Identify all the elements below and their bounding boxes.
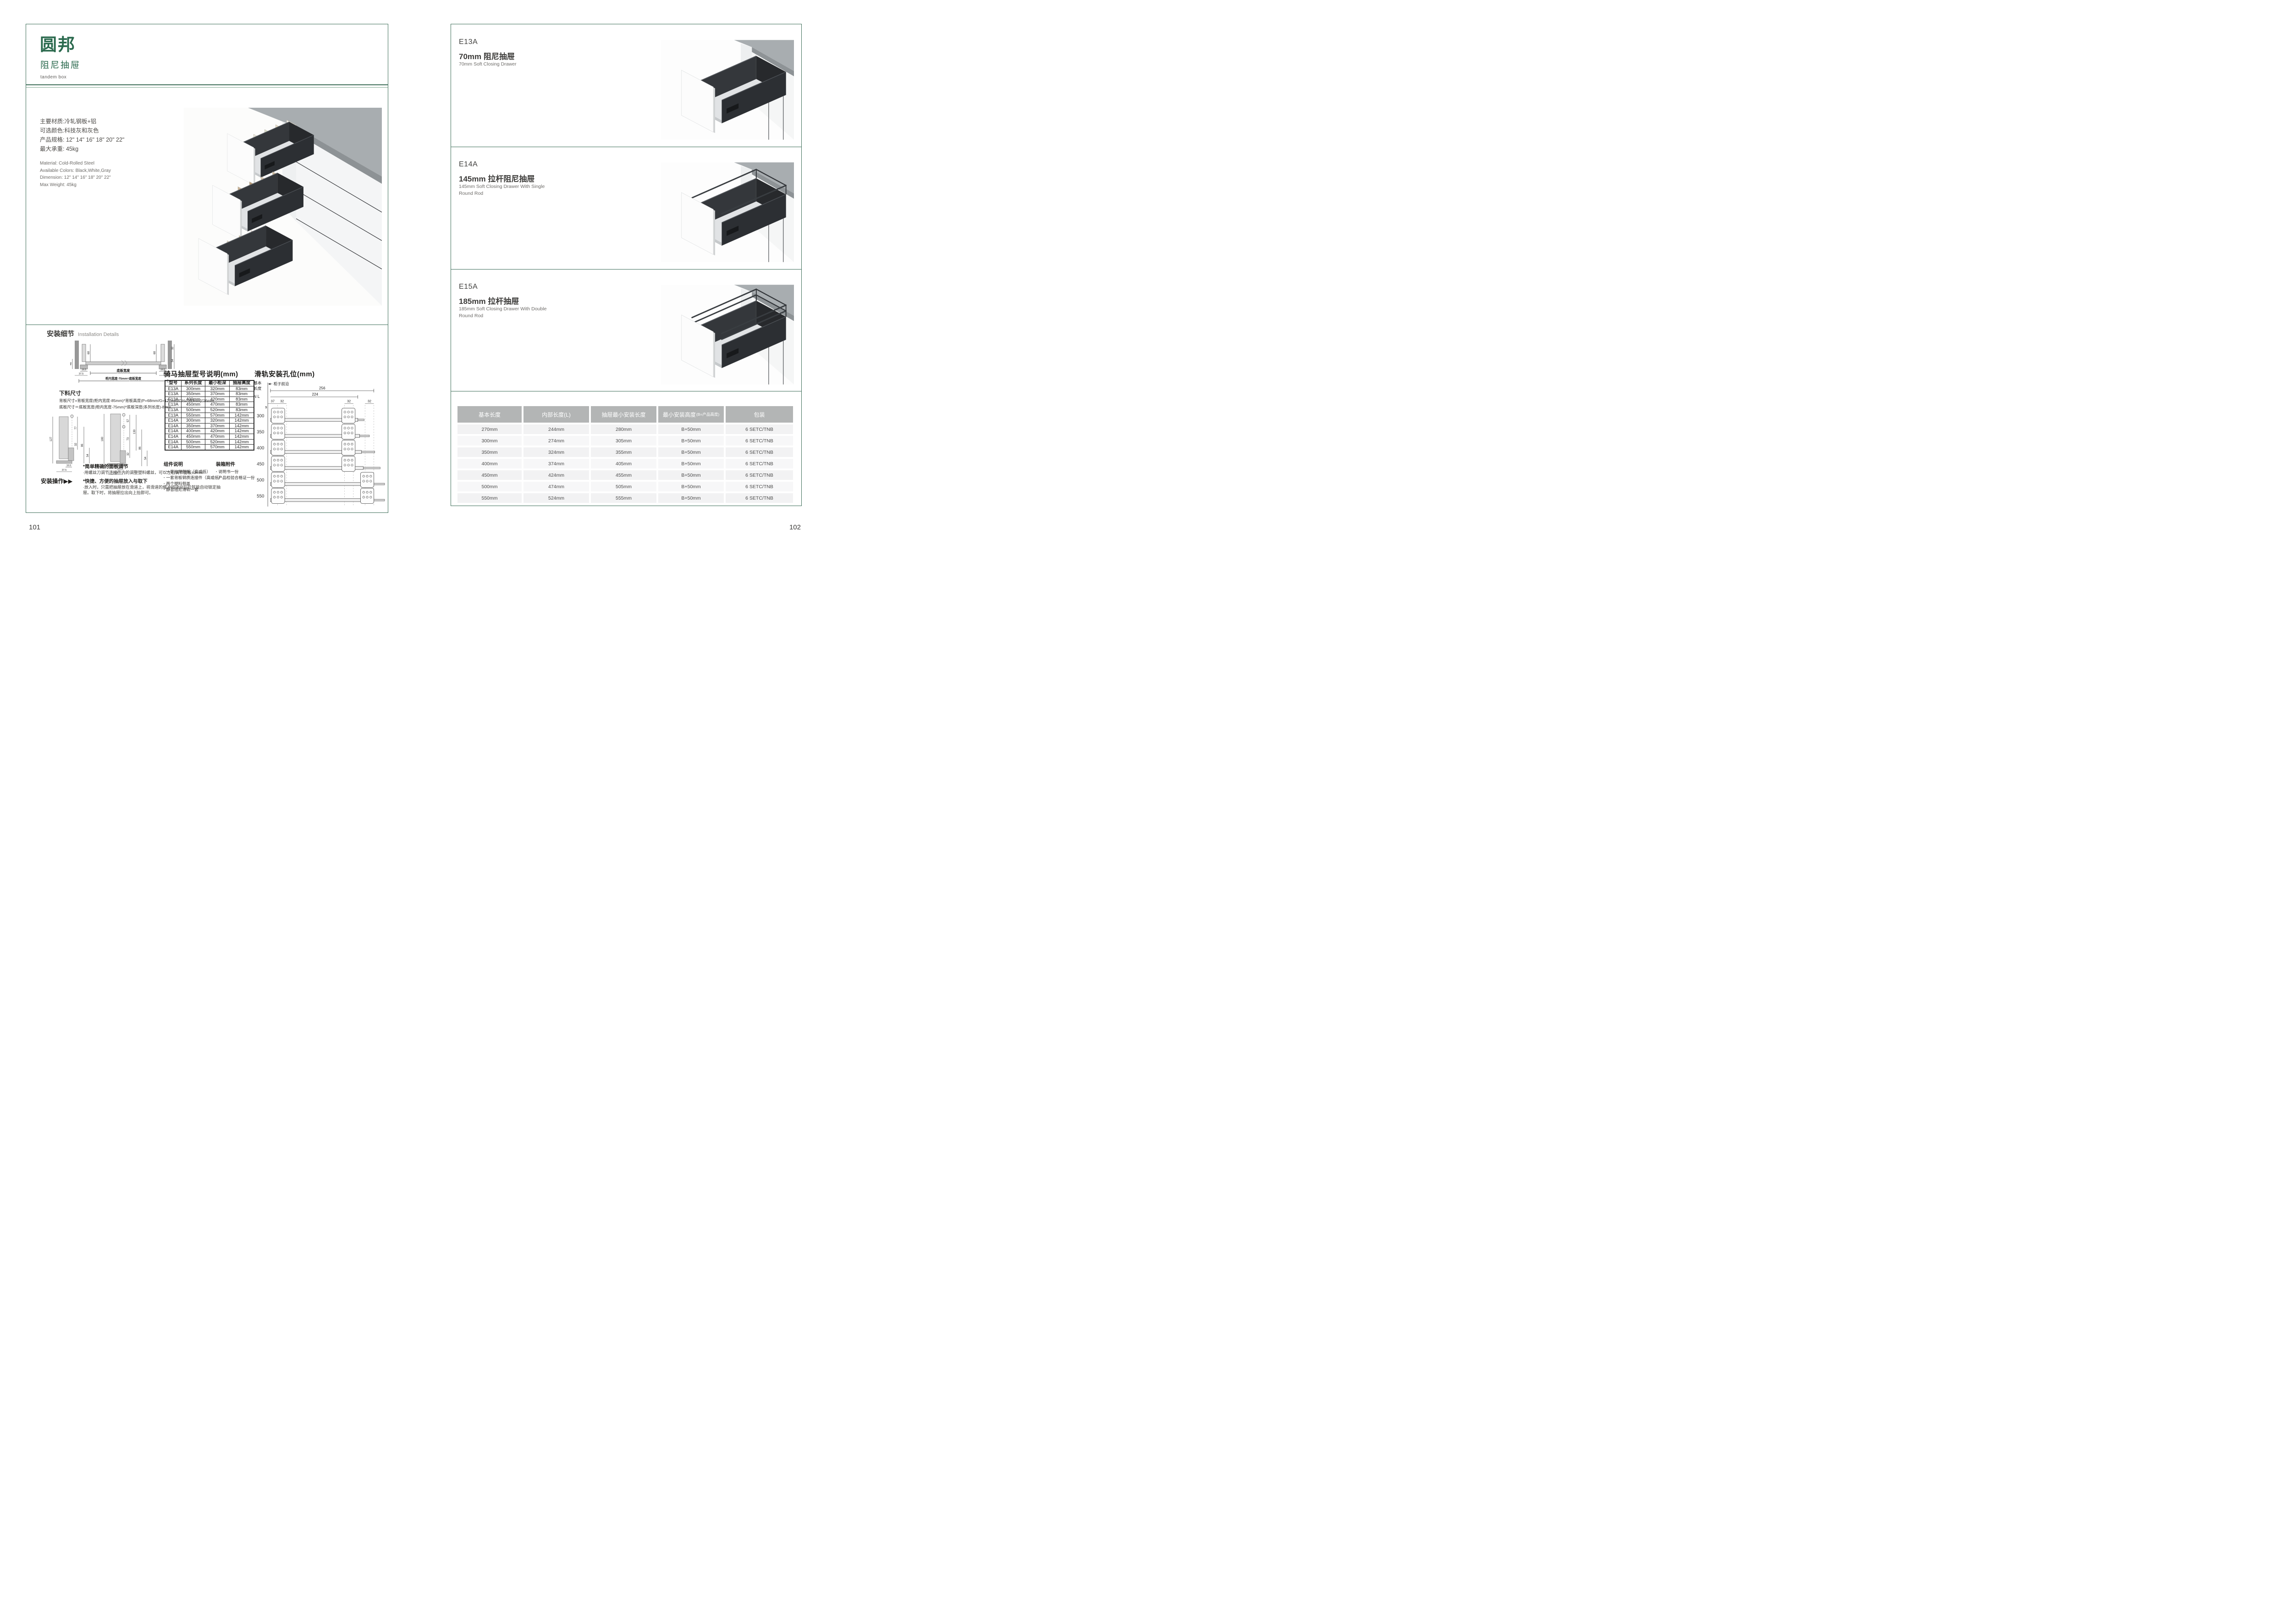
install-title: 安装细节Installation Details: [47, 329, 119, 338]
rail-length-label: 350: [257, 430, 264, 435]
rail-length-label: 300: [257, 414, 264, 419]
table-row: E14A550mm570mm142mm: [165, 445, 254, 450]
dim-label: 57: [127, 419, 130, 422]
dim-label: 68: [154, 351, 156, 354]
dim-label: 54: [87, 454, 89, 457]
spec-cell: 550mm: [457, 493, 522, 503]
dim-label: 9: [265, 405, 267, 409]
spec-cell: 244mm: [523, 424, 589, 434]
model-col-header: 系列长度: [181, 380, 205, 386]
dim-label: 32: [280, 399, 284, 403]
dim-label: 77: [75, 426, 77, 429]
dim-label: 86: [81, 444, 84, 447]
dim-label: 37.5: [62, 469, 67, 472]
spec-cell: 355mm: [591, 447, 656, 457]
front-edge-label: 柜子前沿: [274, 382, 289, 386]
product-name-en-e15a: 185mm Soft Closing Drawer With Double Ro…: [459, 306, 557, 319]
section-divider: [26, 325, 388, 325]
page-number-left: 101: [29, 523, 40, 531]
spec-cell: 6 SETC/TNB: [726, 459, 793, 468]
table-row: E13A350mm370mm83mm: [165, 391, 254, 397]
dim-label: 54: [171, 359, 174, 362]
spec-col-header: 内部长度(L): [523, 406, 589, 423]
spec-cell: 6 SETC/TNB: [726, 436, 793, 446]
spec-cell: 280mm: [591, 424, 656, 434]
page-right-frame: E13A 70mm 阻尼抽屉 70mm Soft Closing Drawer …: [451, 24, 802, 506]
dim-label: 32: [75, 443, 77, 446]
spec-cell: B+50mm: [658, 470, 724, 480]
install-op-text: 安装操作: [41, 478, 64, 484]
dim-label: 224: [312, 392, 318, 396]
spec-table: 基本长度内部长度(L)抽屉最小安装长度最小安装高度(B=产品高度)包装270mm…: [457, 406, 795, 503]
spec-cell: 450mm: [457, 470, 522, 480]
spec-cell: 500mm: [457, 482, 522, 491]
install-cross-section-diagram: 46 68 68 32 54 16.5 37.5 16.5 37.5 底板宽度 …: [70, 339, 176, 385]
dim-label: 180: [101, 436, 104, 441]
dim-label: 底板宽度: [117, 369, 131, 373]
page-title-en: tandem box: [40, 75, 66, 80]
dim-label: 46: [70, 362, 72, 365]
spec-line: Dimension: 12" 14" 16" 18" 20" 22": [40, 174, 111, 182]
rail-length-label: 400: [257, 446, 264, 451]
product-model-e15a: E15A: [459, 283, 478, 291]
spec-line: Available Colors: Black,White,Gray: [40, 167, 111, 175]
section-divider: [451, 269, 801, 270]
product-photo-e13a: [661, 40, 794, 140]
table-row: E13A300mm320mm83mm: [165, 386, 254, 391]
model-table: 型号系列长度最小柜深抽屉高度E13A300mm320mm83mmE13A350m…: [165, 380, 254, 451]
spec-cell: B+50mm: [658, 436, 724, 446]
table-row: E14A350mm370mm142mm: [165, 423, 254, 429]
dim-label: 73: [127, 437, 130, 440]
page-number-right: 102: [775, 523, 801, 531]
spec-col-header: 包装: [726, 406, 793, 423]
spec-line: 主要材质:冷轧钢板+铝: [40, 117, 124, 126]
dim-label: 37.5: [79, 373, 84, 375]
spec-cell: 274mm: [523, 436, 589, 446]
page-title: 阻尼抽屉: [40, 61, 81, 70]
rail-length-label: 450: [257, 462, 264, 467]
spec-cell: 374mm: [523, 459, 589, 468]
model-table-title: 骑马抽屉型号说明(mm): [164, 369, 238, 379]
spec-line: 最大承重: 45kg: [40, 144, 124, 154]
spec-col-header: 基本长度: [457, 406, 522, 423]
rail-diagram-title: 滑轨安装孔位(mm): [254, 369, 315, 379]
dim-label: 37: [271, 399, 275, 403]
spec-cell: 6 SETC/TNB: [726, 447, 793, 457]
spec-cell: 6 SETC/TNB: [726, 493, 793, 503]
product-photo-e15a: [661, 285, 794, 385]
spec-cell: B+50mm: [658, 482, 724, 491]
catalog-spread: 圆邦 阻尼抽屉 tandem box 主要材质:冷轧钢板+铝 可选颜色:科技灰和…: [0, 0, 830, 541]
spec-cell: 6 SETC/TNB: [726, 482, 793, 491]
spec-cell: B+50mm: [658, 447, 724, 457]
rail-hole-diagram: 基本 长度 N L 柜子前沿 256 224 37 9 32 32 32 300…: [253, 379, 386, 509]
product-name-en-e14a: 145mm Soft Closing Drawer With Single Ro…: [459, 183, 557, 197]
table-row: E14A450mm470mm142mm: [165, 434, 254, 439]
list-item: 静音阻尼滑轨一套: [164, 487, 232, 493]
install-op-arrows: ▶▶: [64, 478, 72, 484]
product-name-e14a: 145mm 拉杆阻尼抽屉: [459, 172, 534, 184]
table-row: E14A500mm520mm142mm: [165, 439, 254, 445]
spec-line: 可选颜色:科技灰和灰色: [40, 126, 124, 135]
spec-cell: 6 SETC/TNB: [726, 470, 793, 480]
spec-cell: 474mm: [523, 482, 589, 491]
dim-label: 32: [368, 399, 371, 403]
spec-line: Max Weight: 45kg: [40, 182, 111, 189]
dim-label: 16.5: [66, 464, 71, 467]
spec-cell: 6 SETC/TNB: [726, 424, 793, 434]
product-model-e14a: E14A: [459, 160, 478, 169]
dim-label: 127: [50, 436, 53, 441]
dim-label: 32: [171, 347, 174, 350]
spec-cell: 270mm: [457, 424, 522, 434]
spec-cell: 350mm: [457, 447, 522, 457]
header-divider: [26, 84, 388, 88]
spec-cell: 305mm: [591, 436, 656, 446]
rail-length-label: 550: [257, 494, 264, 499]
install-title-cn: 安装细节: [47, 330, 74, 338]
spec-line: Material: Cold-Rolled Steel: [40, 160, 111, 167]
cutting-size-title: 下料尺寸: [59, 389, 81, 397]
dim-label: 柜内宽度-75mm=底板宽度: [105, 376, 141, 380]
spec-cell: 524mm: [523, 493, 589, 503]
section-divider: [451, 147, 801, 147]
model-col-header: 最小柜深: [205, 380, 230, 386]
main-product-photo: [184, 108, 382, 306]
rail-length-label: 500: [257, 478, 264, 483]
table-row: E13A400mm420mm83mm: [165, 396, 254, 402]
product-name-e15a: 185mm 拉杆抽屉: [459, 295, 519, 306]
table-row: E13A450mm470mm83mm: [165, 402, 254, 407]
list-item: 两个塑料侧盖: [164, 481, 232, 487]
page-left-frame: 圆邦 阻尼抽屉 tandem box 主要材质:冷轧钢板+铝 可选颜色:科技灰和…: [26, 24, 388, 513]
install-title-en: Installation Details: [78, 332, 119, 337]
spec-cell: B+50mm: [658, 459, 724, 468]
table-row: E13A550mm570mm142mm: [165, 413, 254, 418]
spec-list-en: Material: Cold-Rolled Steel Available Co…: [40, 160, 111, 188]
spec-list-cn: 主要材质:冷轧钢板+铝 可选颜色:科技灰和灰色 产品规格: 12" 14" 16…: [40, 117, 124, 154]
dim-label: 130: [133, 429, 136, 434]
dim-label: 32: [127, 452, 130, 456]
dim-label: 54: [144, 457, 147, 460]
table-row: E14A400mm420mm142mm: [165, 429, 254, 434]
product-photo-e14a: [661, 162, 794, 262]
table-row: E13A500mm520mm83mm: [165, 407, 254, 413]
spec-cell: 455mm: [591, 470, 656, 480]
spec-col-header: 最小安装高度(B=产品高度): [658, 406, 724, 423]
model-col-header: 型号: [165, 380, 181, 386]
axis-label: N L: [253, 394, 260, 399]
product-name-en-e13a: 70mm Soft Closing Drawer: [459, 61, 557, 68]
spec-cell: 400mm: [457, 459, 522, 468]
spec-cell: 555mm: [591, 493, 656, 503]
axis-label: 基本: [253, 380, 262, 385]
spec-line: 产品规格: 12" 14" 16" 18" 20" 22": [40, 135, 124, 144]
spec-cell: 324mm: [523, 447, 589, 457]
model-col-header: 抽屉高度: [230, 380, 254, 386]
product-name-e13a: 70mm 阻尼抽屉: [459, 50, 515, 61]
install-op-label: 安装操作▶▶: [41, 476, 72, 485]
spec-cell: 405mm: [591, 459, 656, 468]
axis-label: 长度: [253, 385, 262, 391]
dim-label: 16.5: [82, 369, 86, 371]
spec-cell: 300mm: [457, 436, 522, 446]
dim-label: 68: [88, 351, 90, 354]
table-row: E14A300mm320mm142mm: [165, 418, 254, 424]
dim-label: 256: [319, 386, 325, 390]
spec-col-header: 抽屉最小安装长度: [591, 406, 656, 423]
spec-cell: B+50mm: [658, 424, 724, 434]
dim-label: 32: [347, 399, 351, 403]
spec-cell: B+50mm: [658, 493, 724, 503]
product-model-e13a: E13A: [459, 38, 478, 46]
spec-cell: 424mm: [523, 470, 589, 480]
brand-logo: 圆邦: [40, 36, 76, 53]
spec-cell: 505mm: [591, 482, 656, 491]
section-divider: [451, 391, 801, 391]
dim-label: 86: [139, 446, 142, 450]
